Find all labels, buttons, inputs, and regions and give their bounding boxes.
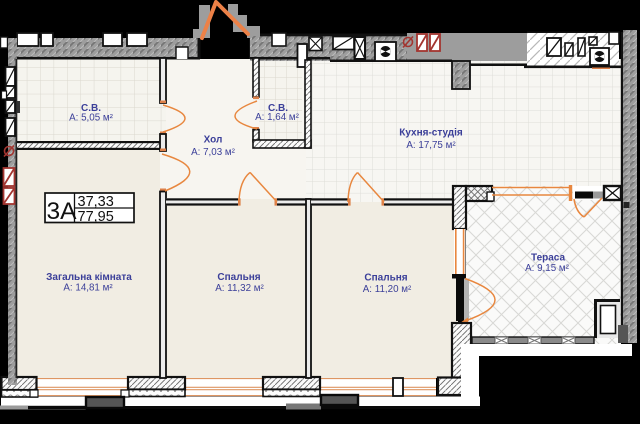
svg-text:А: 5,05 м²: А: 5,05 м² [69, 112, 114, 123]
svg-text:А: 14,81 м²: А: 14,81 м² [63, 283, 113, 294]
svg-text:А: 7,03 м²: А: 7,03 м² [191, 147, 236, 158]
svg-text:А: 11,32 м²: А: 11,32 м² [215, 283, 264, 294]
svg-text:37,33: 37,33 [78, 194, 114, 210]
svg-text:Спальня: Спальня [217, 272, 260, 283]
svg-text:77,95: 77,95 [78, 209, 114, 225]
svg-text:Кухня-студія: Кухня-студія [399, 128, 463, 139]
svg-text:3А: 3А [47, 198, 78, 225]
svg-text:Загальна кімната: Загальна кімната [46, 272, 132, 283]
svg-text:Тераса: Тераса [531, 253, 566, 264]
svg-text:А: 17,75 м²: А: 17,75 м² [406, 140, 456, 151]
svg-text:А: 11,20 м²: А: 11,20 м² [363, 284, 412, 295]
svg-text:Спальня: Спальня [364, 273, 407, 284]
svg-text:А: 1,64 м²: А: 1,64 м² [255, 112, 300, 123]
svg-text:А: 9,15 м²: А: 9,15 м² [525, 263, 570, 274]
svg-text:Хол: Хол [204, 135, 223, 146]
